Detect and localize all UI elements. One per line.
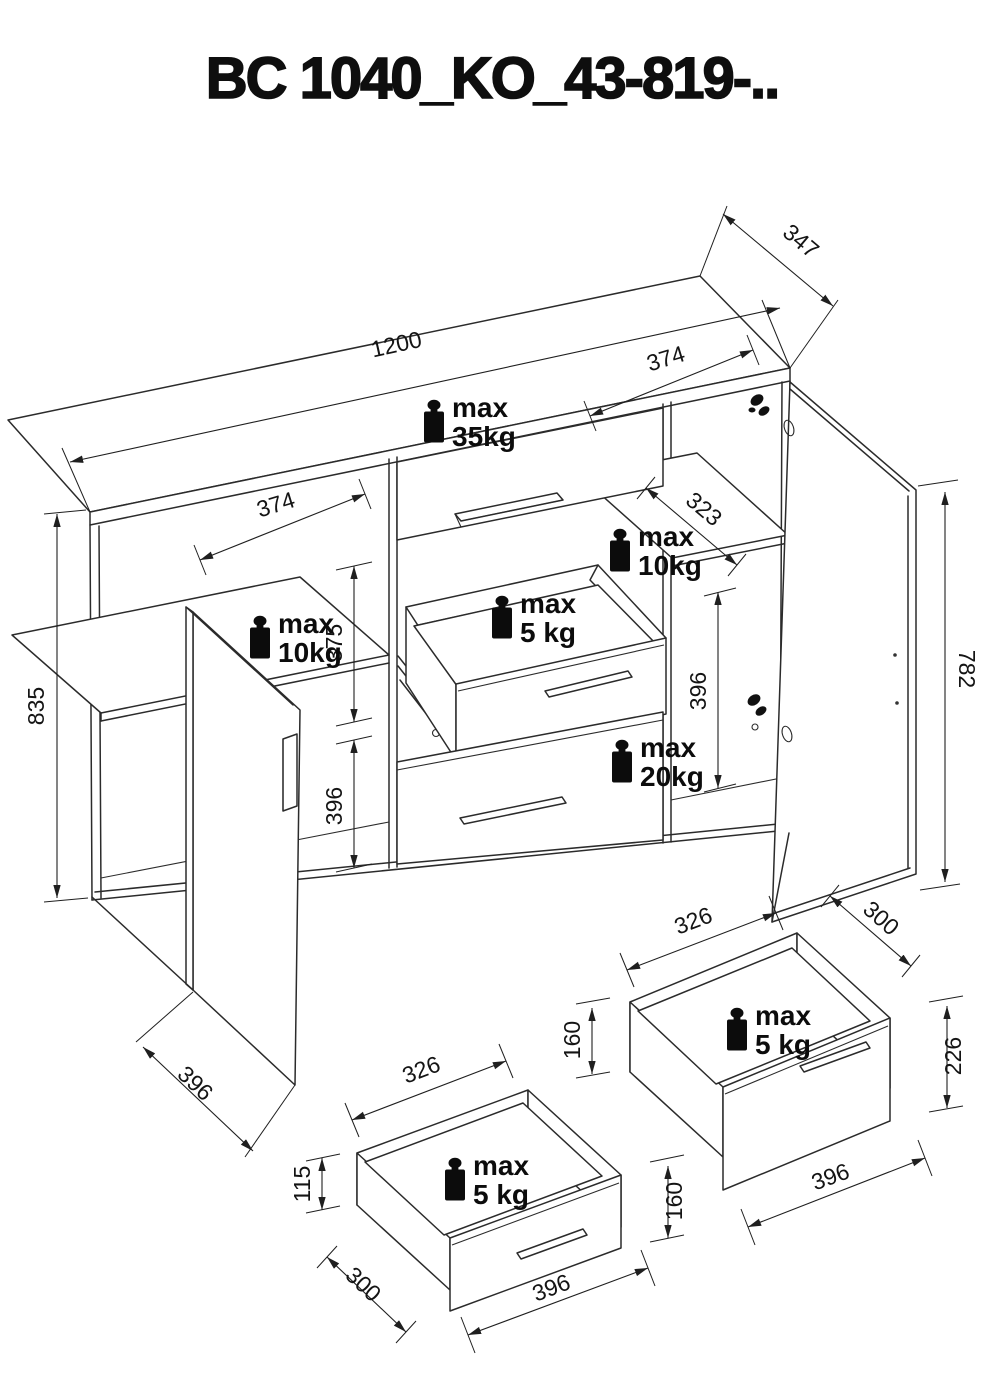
load-value-text: 10kg (638, 550, 702, 581)
dim-label-right-inner-height: 396 (685, 672, 711, 710)
left-door-handle (283, 734, 297, 811)
left-door-edge (186, 607, 193, 990)
dim-label-right-door-height: 782 (954, 650, 980, 688)
dimension-inner-lower-height: 396 (321, 736, 372, 872)
load-max-text: max (640, 732, 696, 763)
dim-label-detail-right-front-width: 396 (808, 1158, 853, 1196)
dimension-detail-left-side-height: 115 (289, 1154, 340, 1213)
dim-label-top-depth: 347 (778, 219, 824, 264)
dim-label-detail-right-front-height: 226 (940, 1037, 966, 1075)
dim-label-detail-left-depth: 300 (341, 1262, 387, 1307)
load-value-text: 20kg (640, 761, 704, 792)
load-value-text: 10kg (278, 637, 342, 668)
load-max-text: max (520, 588, 576, 619)
dim-label-left-door-width: 396 (173, 1061, 219, 1106)
load-max-text: max (278, 608, 334, 639)
right-door (772, 382, 916, 922)
load-max-text: max (755, 1000, 811, 1031)
dimension-detail-right-front-height: 226 (929, 996, 966, 1112)
dimension-detail-left-front-height: 160 (650, 1155, 687, 1242)
load-label-right-shelf: max 10kg (610, 521, 702, 581)
technical-drawing: 1200 347 374 374 (0, 0, 984, 1391)
load-value-text: 5 kg (520, 617, 576, 648)
load-max-text: max (452, 392, 508, 423)
weight-icon (610, 529, 630, 572)
dim-label-detail-right-depth: 300 (858, 896, 904, 941)
dim-label-inner-lower-height: 396 (321, 787, 347, 825)
dimension-height-left: 835 (23, 510, 88, 902)
diagram-canvas: BC 1040_KO_43-819-.. (0, 0, 984, 1391)
dim-label-detail-left-width: 326 (399, 1051, 444, 1089)
dimension-detail-right-side-height: 160 (559, 998, 610, 1078)
load-value-text: 35kg (452, 421, 516, 452)
load-value-text: 5 kg (755, 1029, 811, 1060)
dim-label-detail-left-front-height: 160 (661, 1182, 687, 1220)
hinge-icon (745, 692, 768, 730)
dim-label-section-left: 374 (254, 486, 298, 522)
load-value-text: 5 kg (473, 1179, 529, 1210)
load-max-text: max (473, 1150, 529, 1181)
dim-label-detail-right-side-height: 160 (559, 1021, 585, 1059)
dimension-right-door-height: 782 (918, 480, 980, 890)
right-door-face (772, 382, 916, 922)
left-door-face (193, 612, 300, 1085)
load-max-text: max (638, 521, 694, 552)
dim-label-detail-left-side-height: 115 (289, 1166, 315, 1203)
dim-label-height-left: 835 (23, 687, 49, 725)
hinge-icon (748, 392, 771, 418)
drawer-detail-left: 326 115 300 396 (289, 1044, 687, 1353)
dim-label-detail-right-width: 326 (671, 902, 716, 940)
dimension-detail-left-depth: 300 (317, 1246, 416, 1343)
